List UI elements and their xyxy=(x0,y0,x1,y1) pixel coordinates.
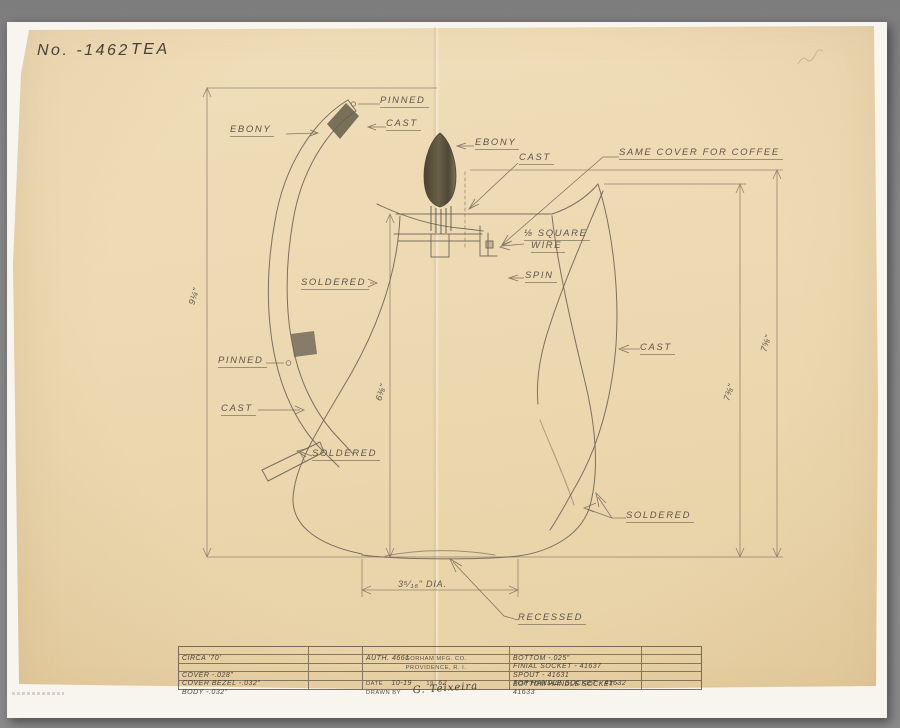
finial xyxy=(424,133,456,234)
cover-dome xyxy=(377,204,483,231)
label-diameter: 3⁵⁄₁₆" DIA. xyxy=(398,579,447,589)
technical-drawing xyxy=(0,0,900,728)
label-pinned-top: PINNED xyxy=(380,96,429,108)
label-square-wire-2: WIRE xyxy=(531,241,565,253)
handle-section xyxy=(262,100,359,481)
tb-body-gauge: BODY -.032" xyxy=(182,689,228,697)
title-block: CIRCA '70' AUTH. 4661 BOTTOM -.025" GORH… xyxy=(178,646,702,690)
label-soldered-upper: SOLDERED xyxy=(301,278,369,290)
tb-city: PROVIDENCE, R. I. xyxy=(366,664,506,672)
label-spin: SPIN xyxy=(525,271,557,283)
label-soldered-handle: SOLDERED xyxy=(312,449,380,461)
pot-body xyxy=(293,214,596,559)
label-same-cover: SAME COVER FOR COFFEE xyxy=(619,148,783,160)
ebony-finial-knob xyxy=(424,133,456,207)
body-right-wall xyxy=(518,216,595,556)
ebony-band-middle xyxy=(291,331,317,357)
label-soldered-spout: SOLDERED xyxy=(626,511,694,523)
square-wire xyxy=(486,241,493,248)
dimension-lines xyxy=(203,88,783,597)
label-ebony-handle: EBONY xyxy=(230,125,274,137)
label-cast-top: CAST xyxy=(386,119,421,131)
recessed-bottom xyxy=(385,551,495,556)
label-recessed: RECESSED xyxy=(518,613,586,625)
label-ebony-finial: EBONY xyxy=(475,138,519,150)
tb-bottom-handle-socket: BOTTOM HANDLE SOCKET - 41633 xyxy=(513,681,638,697)
scanned-drawing-page: { "colors": { "surround": "#868686", "ba… xyxy=(0,0,900,728)
label-cast-handle: CAST xyxy=(221,404,256,416)
tb-company: GORHAM MFG. CO. xyxy=(366,655,506,663)
label-pinned-mid: PINNED xyxy=(218,356,267,368)
label-cast-cover: CAST xyxy=(519,153,554,165)
finial-pins xyxy=(431,206,451,234)
spout-body-seam xyxy=(540,420,574,505)
tb-drawn-by-label: DRAWN BY xyxy=(366,689,401,697)
label-cast-spout: CAST xyxy=(640,343,675,355)
faint-pencil-mark xyxy=(798,50,823,64)
